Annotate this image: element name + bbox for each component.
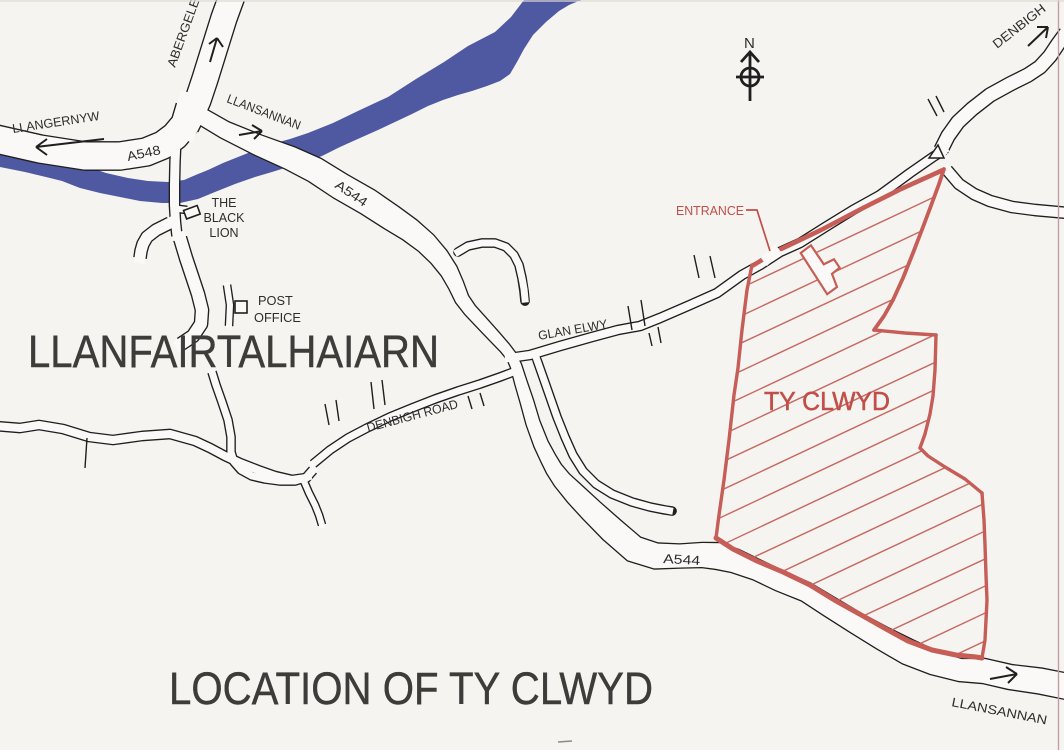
svg-text:LOCATION OF TY CLWYD: LOCATION OF TY CLWYD [169,663,653,714]
svg-text:BLACK: BLACK [204,211,246,225]
svg-text:THE: THE [212,196,237,210]
svg-text:A544: A544 [663,551,701,568]
svg-text:OFFICE: OFFICE [254,310,301,325]
svg-text:ENTRANCE: ENTRANCE [676,204,744,218]
svg-text:LLANFAIRTALHAIARN: LLANFAIRTALHAIARN [28,326,439,377]
svg-text:POST: POST [258,293,293,308]
svg-text:TY CLWYD: TY CLWYD [764,386,890,416]
svg-text:N: N [744,35,755,52]
svg-text:LION: LION [209,226,238,240]
